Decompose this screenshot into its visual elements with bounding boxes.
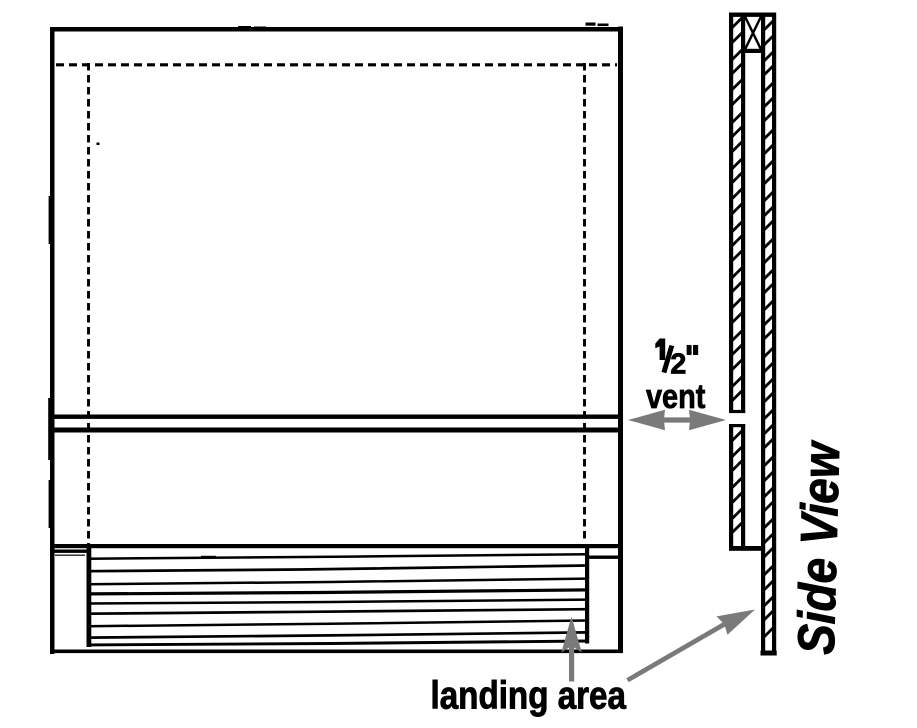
svg-text:landing area: landing area (431, 673, 627, 717)
svg-text:vent: vent (646, 377, 706, 416)
svg-text:Side View: Side View (788, 439, 852, 656)
svg-text:2: 2 (670, 349, 686, 381)
